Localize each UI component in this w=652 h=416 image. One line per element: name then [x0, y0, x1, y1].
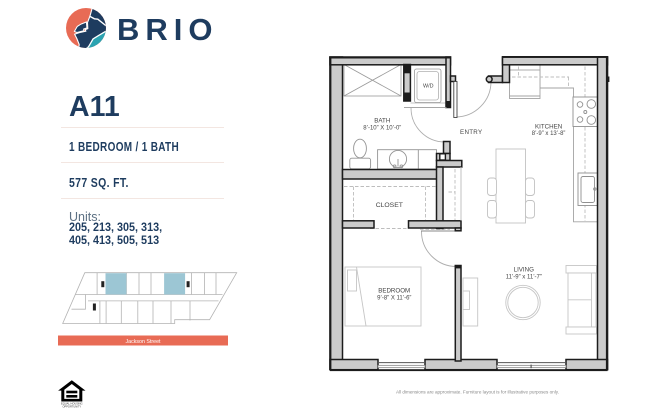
svg-text:CLOSET: CLOSET	[376, 202, 403, 209]
svg-text:W/D: W/D	[423, 84, 434, 90]
svg-text:11’-9” x 11’-7”: 11’-9” x 11’-7”	[506, 274, 542, 280]
svg-text:OPPORTUNITY: OPPORTUNITY	[62, 404, 81, 408]
svg-text:BATH: BATH	[374, 118, 390, 125]
svg-text:KITCHEN: KITCHEN	[535, 123, 562, 130]
svg-text:LIVING: LIVING	[514, 267, 534, 274]
svg-text:Jackson Street: Jackson Street	[125, 339, 161, 345]
svg-text:ENTRY: ENTRY	[460, 129, 482, 136]
svg-text:BEDROOM: BEDROOM	[378, 287, 410, 294]
svg-text:All dimensions are approximate: All dimensions are approximate. Furnitur…	[396, 390, 559, 395]
svg-text:9’-8” X 11’-6”: 9’-8” X 11’-6”	[377, 295, 411, 301]
svg-text:8’-9” x 13’-8”: 8’-9” x 13’-8”	[532, 131, 566, 137]
svg-text:8’-10” X 10’-0”: 8’-10” X 10’-0”	[363, 125, 401, 131]
